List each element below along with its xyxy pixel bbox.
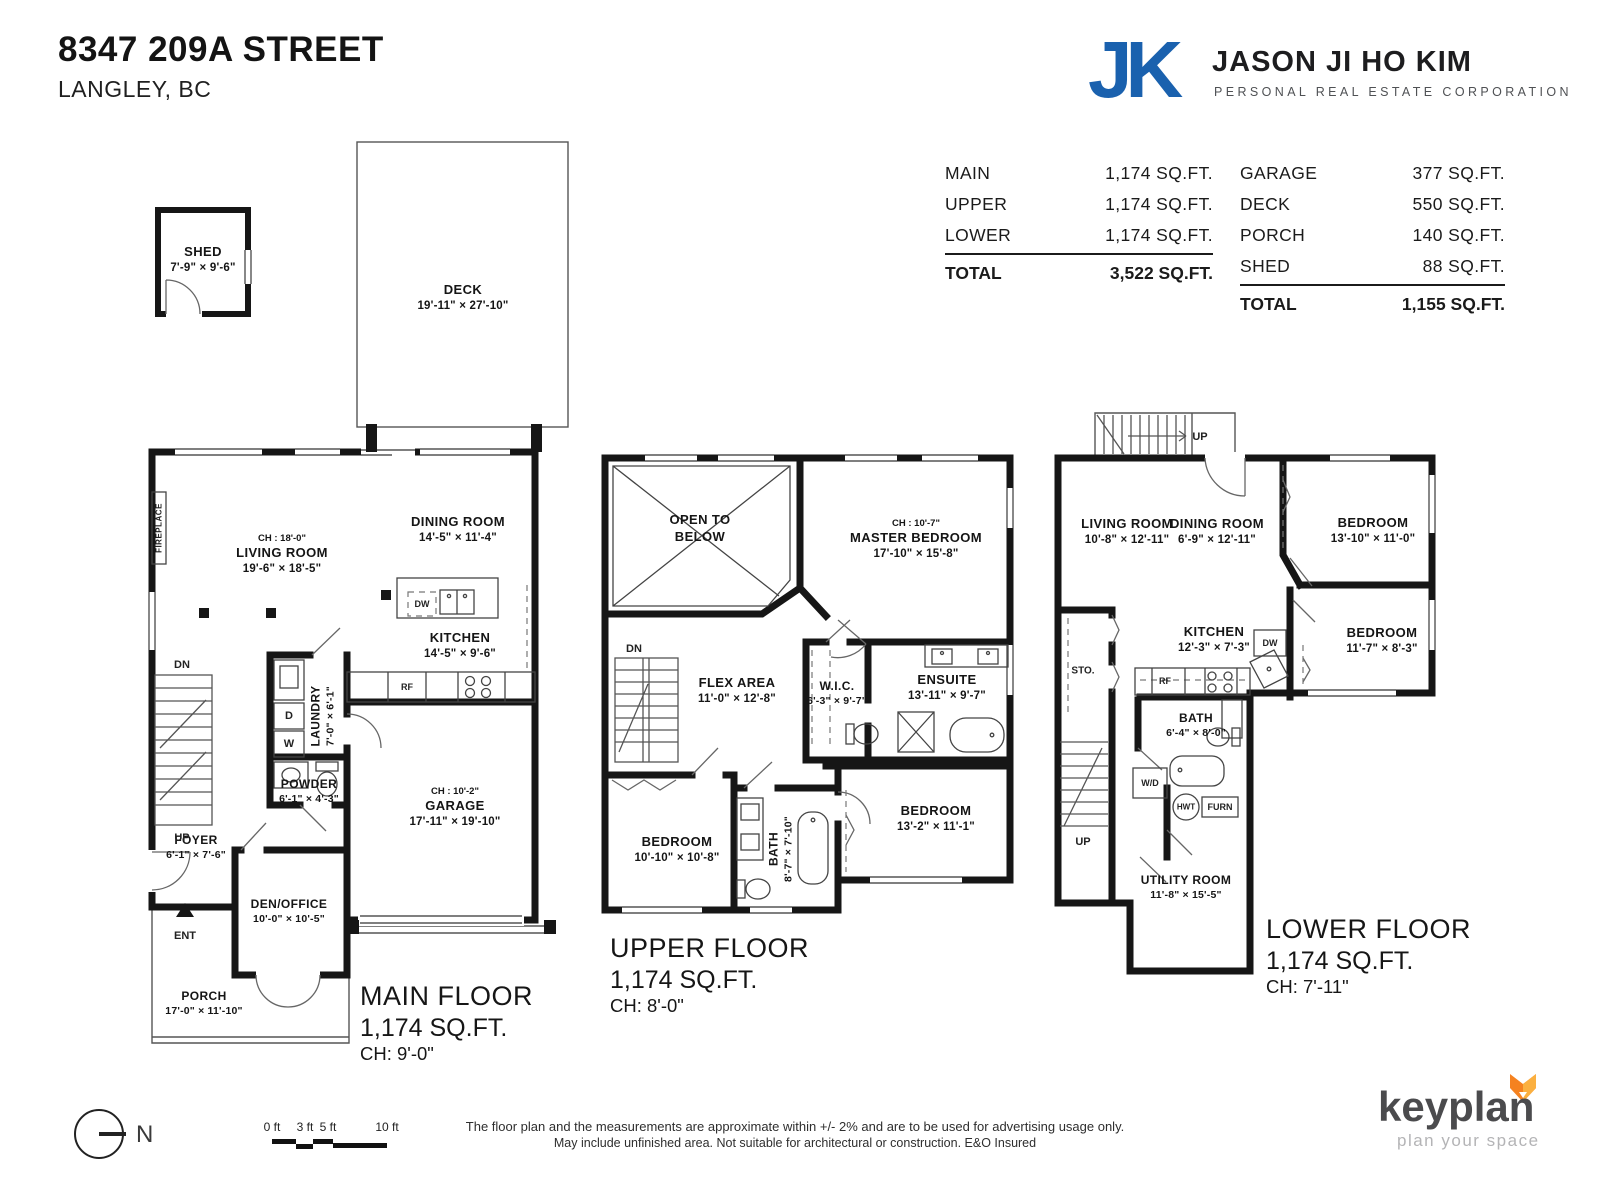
stairs-up-label: UP [174,832,189,844]
table-total-row: TOTAL1,155 SQ.FT. [1240,286,1505,322]
compass-north-label: N [136,1121,153,1149]
dryer-label: D [285,710,293,722]
scale-tick: 3 ft [297,1120,314,1134]
table-row: SHED88 SQ.FT. [1240,251,1505,282]
disclaimer-line-1: The floor plan and the measurements are … [466,1119,1124,1134]
room-label-kitchen: KITCHEN14'-5" × 9'-6" [424,630,496,662]
table-row: LOWER1,174 SQ.FT. [945,220,1213,251]
washer-dryer-label: W/D [1141,778,1159,788]
hot-water-tank-label: HWT [1177,803,1195,812]
room-label-porch: PORCH 17'-0" × 11'-10" [165,989,242,1018]
room-label-flex-area: FLEX AREA11'-0" × 12'-8" [698,675,776,707]
room-label-laundry: LAUNDRY 7'-0" × 6'-1" [308,685,337,746]
room-label-den-office: DEN/OFFICE 10'-0" × 10'-5" [251,897,328,926]
keyplan-tagline: plan your space [1397,1131,1540,1151]
dishwasher-label: DW [1263,638,1278,648]
keyplan-logo: keyplan [1378,1083,1534,1131]
room-label-bath-lower: BATH 6'-4" × 8'-0" [1166,711,1226,740]
other-area-table: GARAGE377 SQ.FT. DECK550 SQ.FT. PORCH140… [1240,158,1505,322]
disclaimer-line-2: May include unfinished area. Not suitabl… [554,1136,1036,1150]
open-to-below-label: OPEN TO BELOW [669,512,730,546]
table-total-row: TOTAL3,522 SQ.FT. [945,255,1213,291]
fridge-label: RF [401,682,413,692]
room-label-deck: DECK19'-11" × 27'-10" [417,282,508,314]
lower-floor-caption: LOWER FLOOR 1,174 SQ.FT. CH: 7'-11" [1266,913,1471,999]
agent-name: JASON JI HO KIM [1212,46,1472,79]
stairs-dn-label: DN [174,659,190,671]
table-row: MAIN1,174 SQ.FT. [945,158,1213,189]
room-label-utility-room: UTILITY ROOM 11'-8" × 15'-5" [1141,873,1232,902]
floor-area-table: MAIN1,174 SQ.FT. UPPER1,174 SQ.FT. LOWER… [945,158,1213,291]
room-label-bedroom-upper-right: BEDROOM13'-2" × 11'-1" [897,803,975,835]
table-row: UPPER1,174 SQ.FT. [945,189,1213,220]
agent-monogram-logo: JK [1088,30,1176,110]
scale-tick: 0 ft [264,1120,281,1134]
room-label-bedroom-lower-top: BEDROOM13'-10" × 11'-0" [1331,515,1415,547]
furnace-label: FURN [1208,802,1233,812]
stairs-dn-label: DN [626,643,642,655]
room-label-powder: POWDER 6'-1" × 4'-3" [279,777,339,806]
entry-label: ENT [174,930,196,942]
table-row: DECK550 SQ.FT. [1240,189,1505,220]
room-label-bedroom-upper-left: BEDROOM10'-10" × 10'-8" [634,834,719,866]
room-label-living-room: CH : 18'-0" LIVING ROOM19'-6" × 18'-5" [236,533,328,577]
table-row: GARAGE377 SQ.FT. [1240,158,1505,189]
stairs-up-interior-label: UP [1075,836,1090,848]
fridge-label: RF [1159,676,1171,686]
storage-label: STO. [1071,666,1094,677]
room-label-shed: SHED7'-9" × 9'-6" [170,244,235,276]
scale-tick: 5 ft [320,1120,337,1134]
room-label-garage: CH : 10'-2" GARAGE17'-11" × 19'-10" [409,786,500,830]
room-label-bath-upper: BATH 8'-7" × 7'-10" [766,816,795,882]
room-label-dining-room: DINING ROOM14'-5" × 11'-4" [411,514,505,546]
main-floor-caption: MAIN FLOOR 1,174 SQ.FT. CH: 9'-0" [360,980,533,1066]
room-label-kitchen-lower: KITCHEN12'-3" × 7'-3" [1178,624,1250,656]
upper-floor-caption: UPPER FLOOR 1,174 SQ.FT. CH: 8'-0" [610,932,809,1018]
stairs-up-exterior-label: UP [1192,431,1207,443]
room-label-wic: W.I.C. 6'-3" × 9'-7" [807,679,867,708]
floorplan-sheet: 8347 209A STREET LANGLEY, BC JK JASON JI… [0,0,1600,1200]
dishwasher-label: DW [415,599,430,609]
fireplace-label: FIREPLACE [155,503,164,553]
room-label-master-bedroom: CH : 10'-7" MASTER BEDROOM17'-10" × 15'-… [850,518,982,562]
page-title: 8347 209A STREET [58,30,384,70]
scale-tick: 10 ft [375,1120,398,1134]
table-row: PORCH140 SQ.FT. [1240,220,1505,251]
room-label-living-lower: LIVING ROOM10'-8" × 12'-11" [1081,516,1173,548]
room-label-dining-lower: DINING ROOM6'-9" × 12'-11" [1170,516,1264,548]
washer-label: W [284,738,294,750]
page-subtitle: LANGLEY, BC [58,76,211,103]
room-label-ensuite: ENSUITE13'-11" × 9'-7" [908,672,986,704]
agent-tagline: PERSONAL REAL ESTATE CORPORATION [1214,85,1572,99]
room-label-bedroom-lower-bottom: BEDROOM11'-7" × 8'-3" [1346,625,1417,657]
